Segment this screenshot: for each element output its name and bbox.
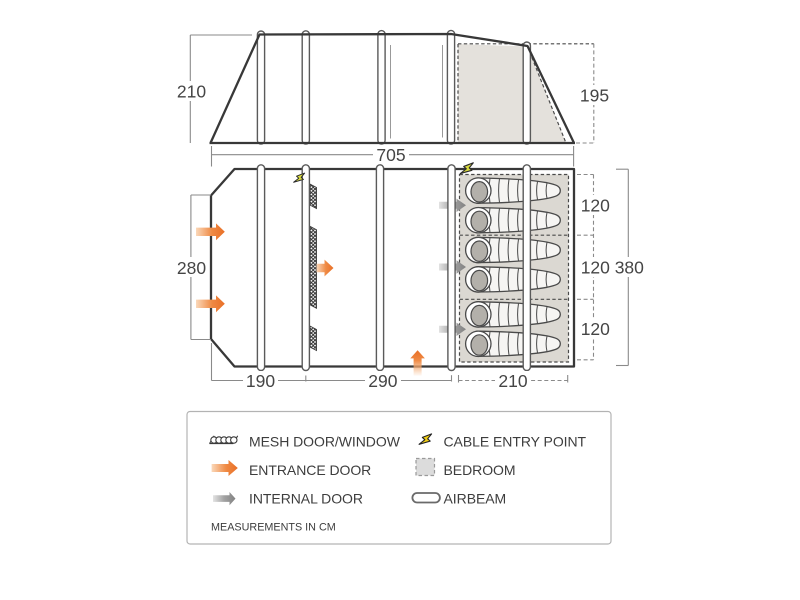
- svg-text:280: 280: [177, 258, 206, 278]
- svg-text:290: 290: [368, 371, 397, 391]
- svg-text:210: 210: [498, 371, 527, 391]
- svg-text:210: 210: [177, 82, 206, 102]
- svg-text:190: 190: [246, 371, 275, 391]
- svg-text:380: 380: [615, 258, 644, 278]
- svg-text:120: 120: [581, 319, 610, 339]
- svg-text:MESH DOOR/WINDOW: MESH DOOR/WINDOW: [249, 433, 401, 449]
- svg-text:705: 705: [376, 145, 405, 165]
- svg-text:AIRBEAM: AIRBEAM: [444, 490, 507, 506]
- svg-text:120: 120: [581, 196, 610, 216]
- svg-text:MEASUREMENTS IN CM: MEASUREMENTS IN CM: [211, 522, 336, 534]
- svg-text:195: 195: [580, 86, 609, 106]
- svg-text:ENTRANCE DOOR: ENTRANCE DOOR: [249, 462, 371, 478]
- svg-text:120: 120: [581, 258, 610, 278]
- svg-text:CABLE ENTRY POINT: CABLE ENTRY POINT: [444, 433, 587, 449]
- svg-text:BEDROOM: BEDROOM: [444, 462, 516, 478]
- svg-text:INTERNAL DOOR: INTERNAL DOOR: [249, 490, 363, 506]
